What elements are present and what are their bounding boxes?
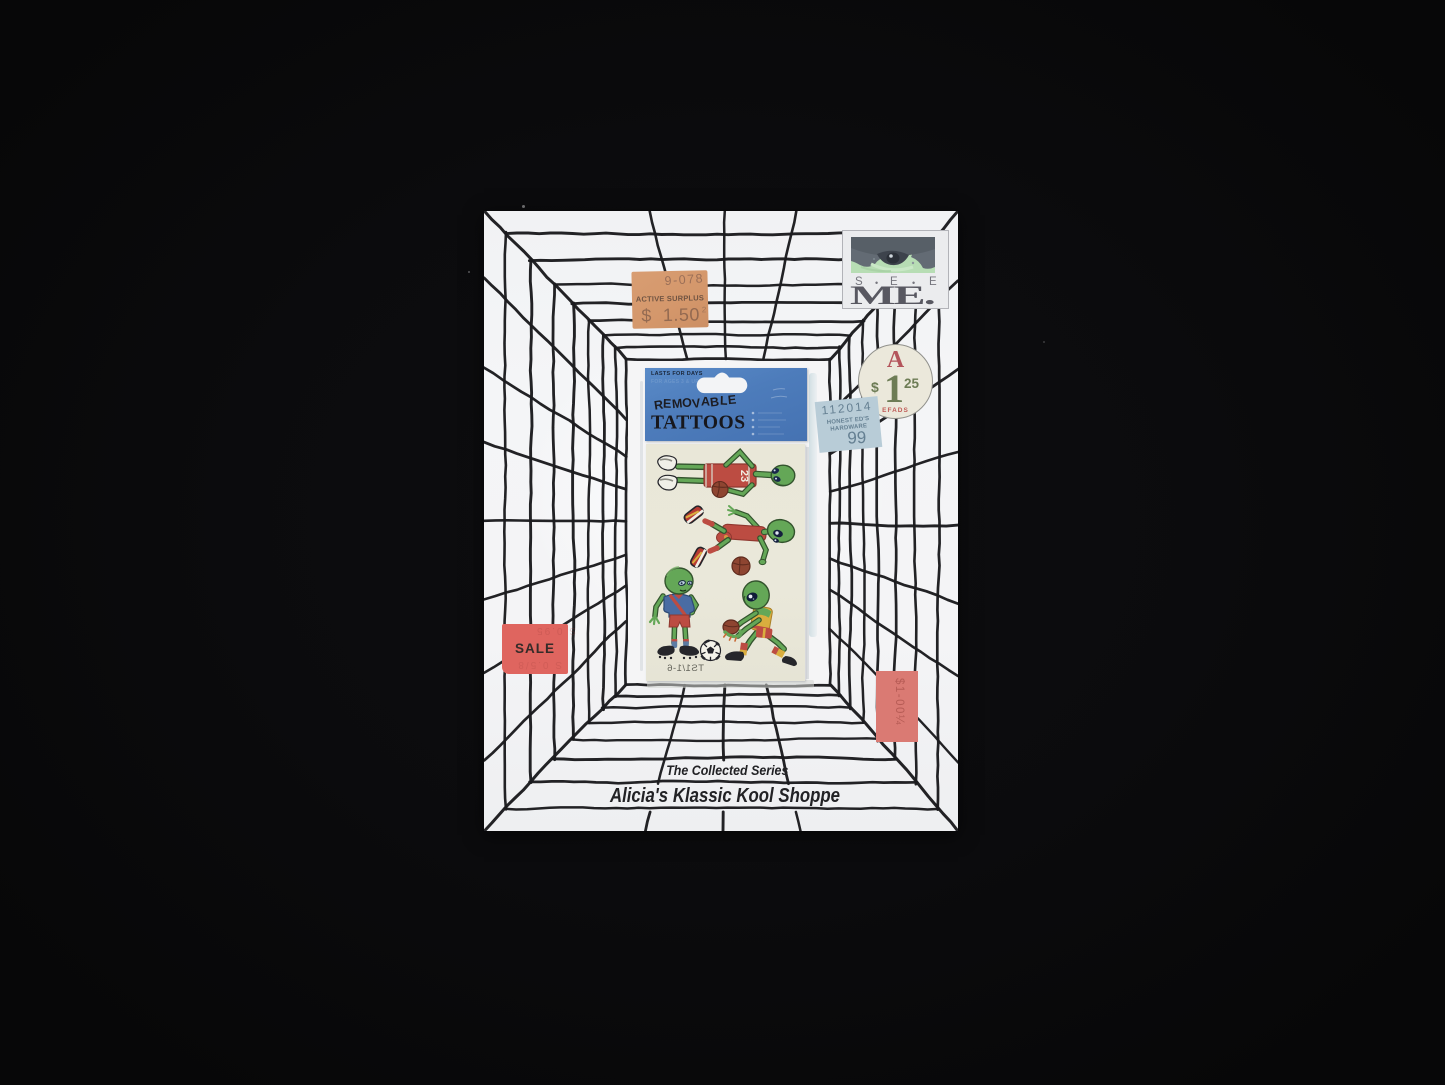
svg-text:23: 23 <box>738 470 750 482</box>
